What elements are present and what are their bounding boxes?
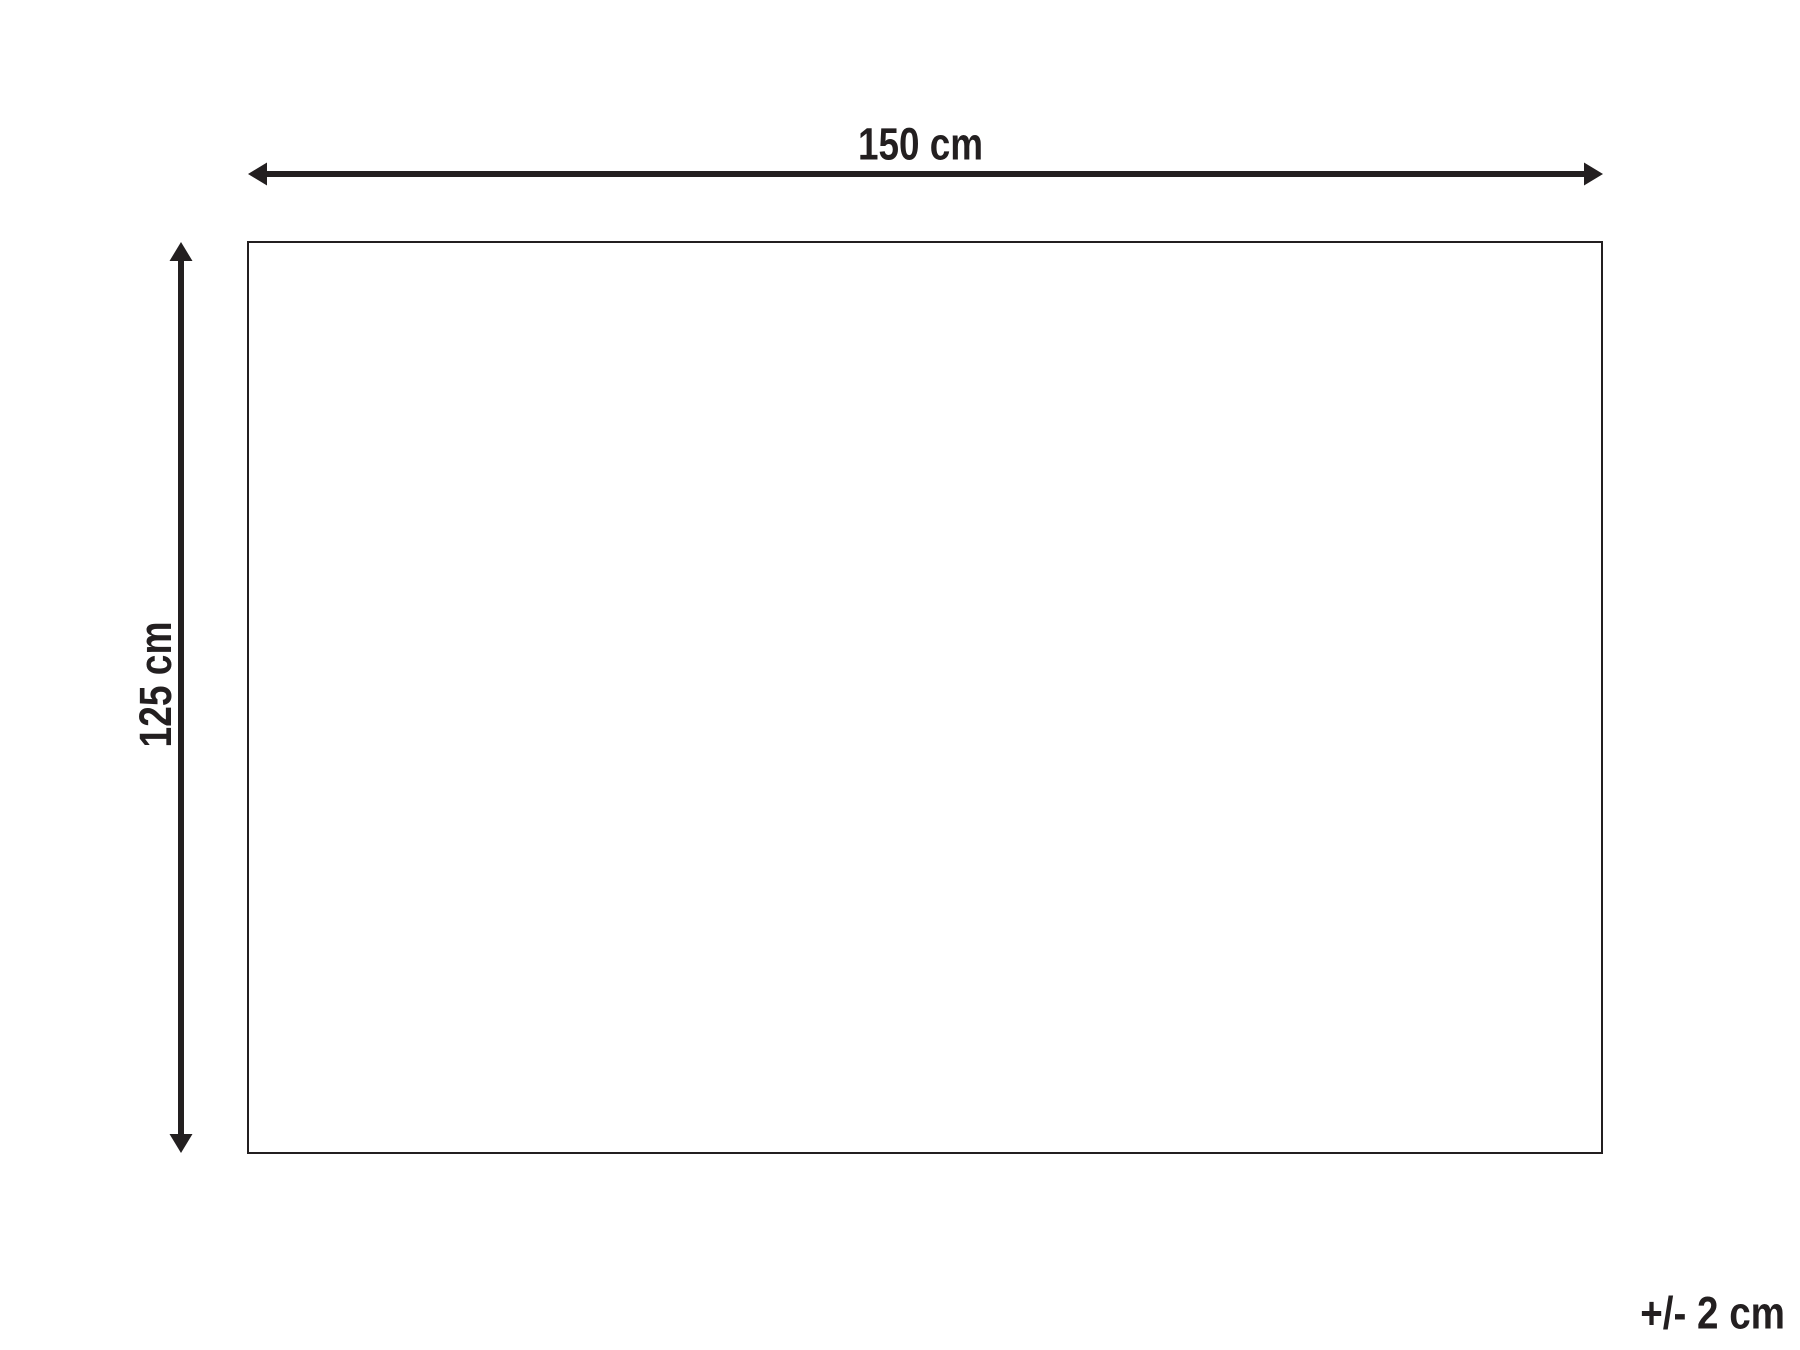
- svg-text:125 cm: 125 cm: [131, 622, 181, 748]
- svg-text:150 cm: 150 cm: [858, 119, 983, 169]
- svg-text:+/- 2 cm: +/- 2 cm: [1640, 1288, 1785, 1338]
